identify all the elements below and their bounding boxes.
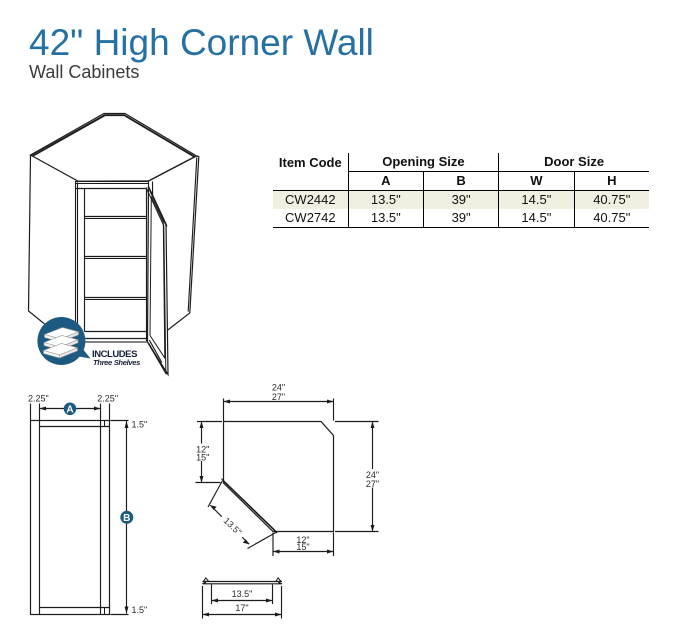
svg-text:1.5": 1.5" xyxy=(132,605,148,615)
svg-text:24": 24" xyxy=(272,382,285,392)
svg-text:15": 15" xyxy=(296,542,309,552)
svg-text:B: B xyxy=(123,513,130,524)
svg-text:A: A xyxy=(66,404,73,415)
svg-text:15": 15" xyxy=(196,453,209,463)
svg-text:13.5": 13.5" xyxy=(232,589,253,599)
svg-text:2.25": 2.25" xyxy=(28,394,49,404)
svg-text:17": 17" xyxy=(235,603,248,613)
svg-text:2.25": 2.25" xyxy=(97,394,118,404)
svg-text:27": 27" xyxy=(366,479,379,489)
svg-text:1.5": 1.5" xyxy=(132,420,148,430)
svg-text:27": 27" xyxy=(272,392,285,402)
